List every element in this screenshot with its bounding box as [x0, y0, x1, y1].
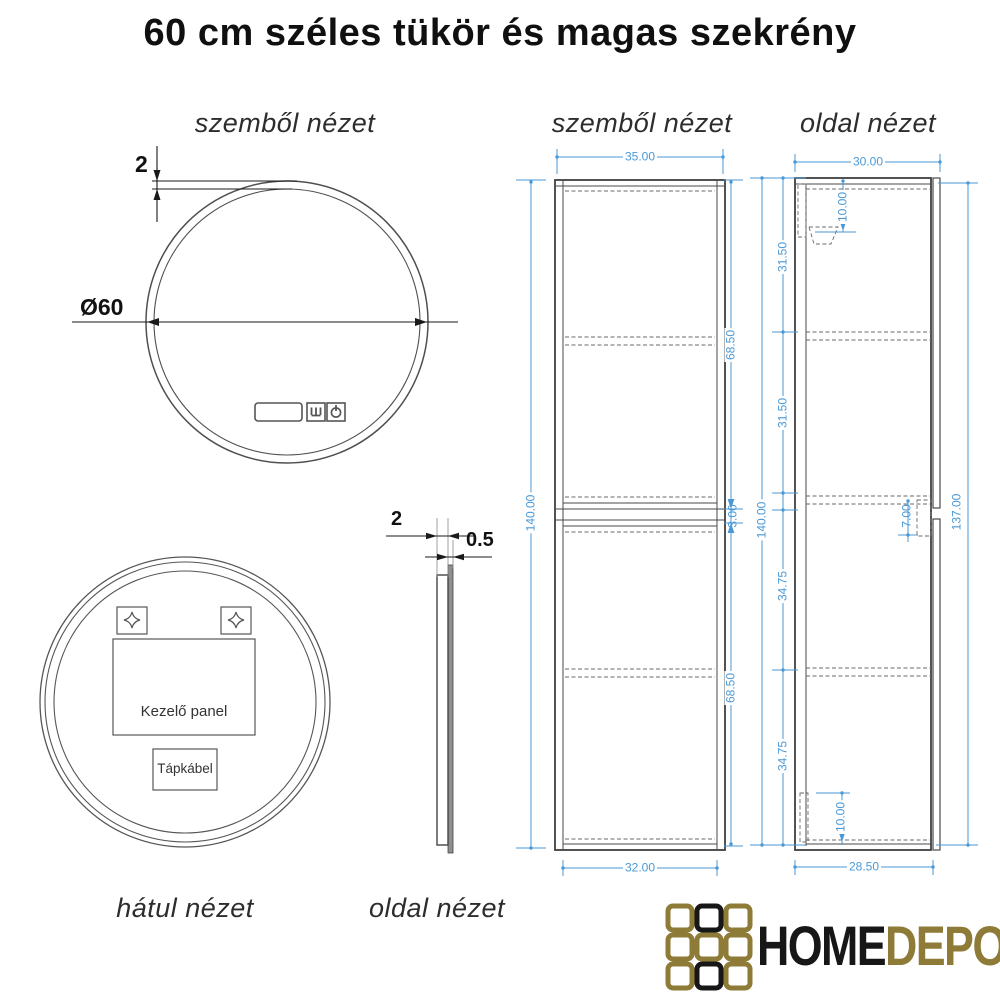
cabinet-front-dims [516, 149, 743, 876]
control-panel-box [113, 639, 255, 735]
logo-text-home: HOME [757, 914, 885, 977]
mirror-front-view-label: szemből nézet [135, 108, 435, 139]
mirror-side-drawing [386, 518, 492, 853]
homedepo-logo-grid-icon [668, 906, 750, 988]
dim-cabinet-height: 140.00 [525, 493, 538, 534]
dim-cabinet-upper-section: 68.50 [725, 328, 738, 362]
defogger-icon [307, 403, 325, 421]
dim-mirror-glass-thickness: 0.5 [466, 529, 494, 552]
dim-side-height-right: 137.00 [951, 492, 964, 533]
dim-cabinet-middle-gap: 3.00 [727, 502, 740, 529]
power-cable-label: Tápkábel [153, 761, 217, 776]
mirror-side-view-label: oldal nézet [287, 893, 587, 924]
dim-side-depth-bottom: 28.50 [847, 861, 881, 874]
homedepo-logo-wordmark: HOMEDEPO [757, 916, 1000, 976]
dim-side-handle-height: 7.00 [901, 502, 914, 529]
dim-side-segment-2: 31.50 [777, 396, 790, 430]
dim-mirror-side-frame: 2 [391, 508, 402, 531]
power-icon [327, 403, 345, 421]
dim-mirror-diameter: Ø60 [80, 294, 123, 321]
dim-mirror-frame-thickness: 2 [135, 151, 148, 178]
mounting-rail-bottom [800, 793, 808, 842]
dim-side-segment-1: 31.50 [777, 240, 790, 274]
mirror-back-drawing [40, 557, 330, 847]
dim-cabinet-lower-section: 68.50 [725, 671, 738, 705]
dim-cabinet-width-top: 35.00 [623, 151, 657, 164]
dim-side-height: 140.00 [756, 500, 769, 541]
screw-star-icon [124, 612, 140, 628]
dim-side-bracket-offset: 10.00 [837, 190, 850, 224]
dim-side-segment-4: 34.75 [777, 739, 790, 773]
screw-star-icon [228, 612, 244, 628]
page-title: 60 cm széles tükör és magas szekrény [0, 12, 1000, 55]
dim-side-segment-3: 34.75 [777, 569, 790, 603]
dim-side-depth-top: 30.00 [851, 156, 885, 169]
mirror-front-thickness-dim [152, 146, 297, 222]
dim-side-rail-height: 10.00 [835, 800, 848, 834]
door-handle [917, 500, 931, 536]
cabinet-side-drawing [795, 178, 940, 850]
cabinet-side-view-label: oldal nézet [718, 108, 1000, 139]
logo-text-depo: DEPO [885, 914, 1000, 977]
cabinet-front-drawing [555, 180, 725, 850]
dim-cabinet-width-bottom: 32.00 [623, 862, 657, 875]
display-icon [255, 403, 302, 421]
mirror-front-diameter-dim [72, 318, 458, 326]
technical-drawing-page: 60 cm széles tükör és magas szekrény sze… [0, 0, 1000, 1000]
drawing-canvas [0, 0, 1000, 1000]
mounting-rail-top [798, 184, 806, 237]
wall-bracket [809, 227, 838, 244]
control-panel-label: Kezelő panel [113, 703, 255, 720]
